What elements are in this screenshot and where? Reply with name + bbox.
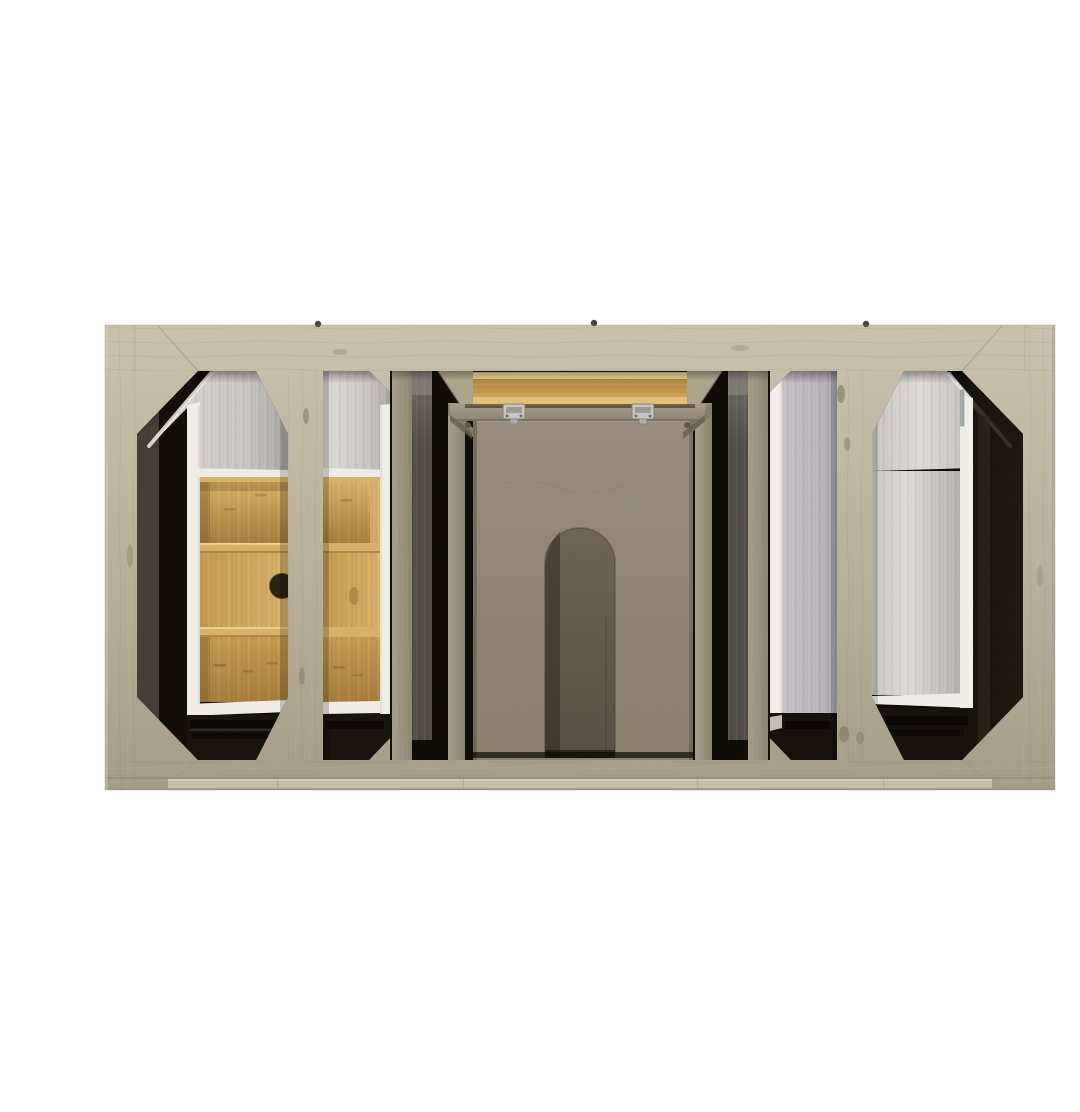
frame-details <box>105 320 1055 790</box>
photo-grain-overlay <box>105 325 1055 790</box>
vanity-back-view <box>40 16 1080 1096</box>
cabinet <box>105 320 1055 790</box>
product-photo <box>40 16 1080 1096</box>
